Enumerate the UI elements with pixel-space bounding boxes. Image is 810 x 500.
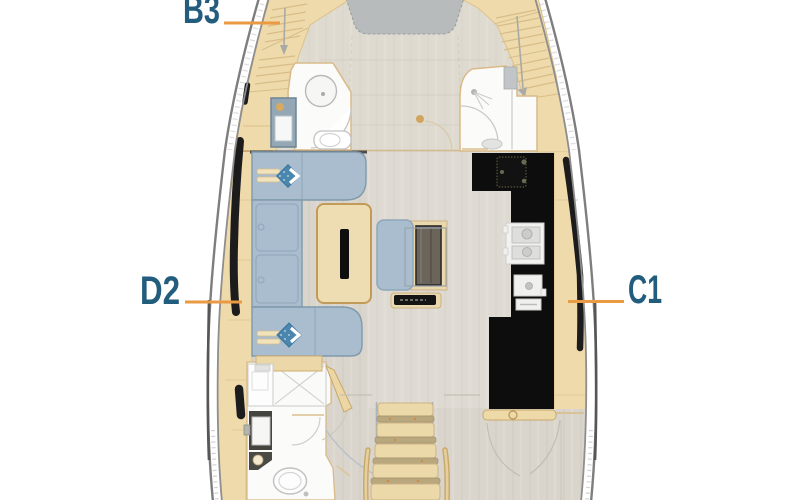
svg-text:B3: B3	[183, 0, 220, 32]
svg-text:D2: D2	[140, 269, 180, 313]
svg-text:C1: C1	[628, 268, 662, 312]
